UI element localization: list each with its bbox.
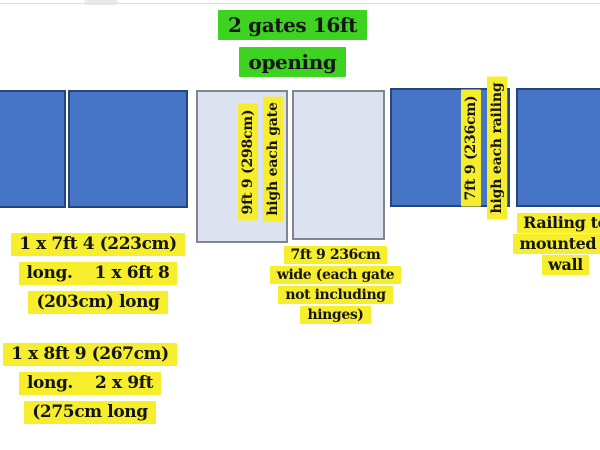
note-line: (275cm long [0,401,186,424]
left-railings-note-1: 1 x 7ft 4 (223cm) long. 1 x 6ft 8 (203cm… [0,233,198,320]
gate-right [292,90,385,240]
note-text: long. 1 x 6ft 8 [19,262,178,285]
note-text: (203cm) long [28,291,167,314]
note-line: 1 x 8ft 9 (267cm) [0,343,186,366]
note-text: hinges) [300,306,370,324]
railing-height-dimension-text: 7ft 9 (236cm) [461,90,481,207]
note-line: 1 x 7ft 4 (223cm) [0,233,198,256]
note-text: 1 x 8ft 9 (267cm) [3,343,177,366]
note-text: wall [542,255,589,275]
railing-height-desc-text: high each railing [487,77,507,220]
note-line: long. 1 x 6ft 8 [0,262,198,285]
note-line: mounted o [488,234,600,254]
note-text: long. 2 x 9ft [19,372,161,395]
note-line: long. 2 x 9ft [0,372,186,395]
note-line: not including [258,286,413,304]
note-text: (275cm long [24,401,155,424]
note-text: 7ft 9 236cm [284,246,388,264]
gate-height-desc-text: high each gate [263,96,283,221]
title-text-2: opening [239,47,347,77]
note-line: (203cm) long [0,291,198,314]
note-text: 1 x 7ft 4 (223cm) [11,233,185,256]
left-railings-note-2: 1 x 8ft 9 (267cm) long. 2 x 9ft (275cm l… [0,343,186,430]
gate-height-desc-label: high each gate [263,96,283,221]
note-line: hinges) [258,306,413,324]
top-artifact [84,0,118,5]
title-line: opening [210,47,375,77]
note-line: Railing to [488,213,600,233]
note-text: wide (each gate [270,266,401,284]
title-text-1: 2 gates 16ft [218,10,367,40]
title-line: 2 gates 16ft [210,10,375,40]
railing-panel-right-outer [516,88,600,207]
note-text: not including [278,286,392,304]
note-text: Railing to [517,213,600,233]
fence-plan-diagram: 2 gates 16ft opening 9ft 9 (298cm) high … [0,0,600,450]
railing-height-desc-label: high each railing [487,77,507,220]
note-line: 7ft 9 236cm [258,246,413,264]
note-line: wide (each gate [258,266,413,284]
gate-height-dimension-label: 9ft 9 (298cm) [238,104,258,221]
railing-panel-left-outer [0,90,66,208]
railing-height-dimension-label: 7ft 9 (236cm) [461,90,481,207]
note-text: mounted o [513,234,600,254]
note-line: wall [488,255,600,275]
gate-height-dimension-text: 9ft 9 (298cm) [238,104,258,221]
railing-mount-note: Railing to mounted o wall [488,213,600,276]
gate-width-note: 7ft 9 236cm wide (each gate not includin… [258,246,413,326]
diagram-title: 2 gates 16ft opening [210,10,375,84]
railing-panel-left-inner [68,90,188,208]
